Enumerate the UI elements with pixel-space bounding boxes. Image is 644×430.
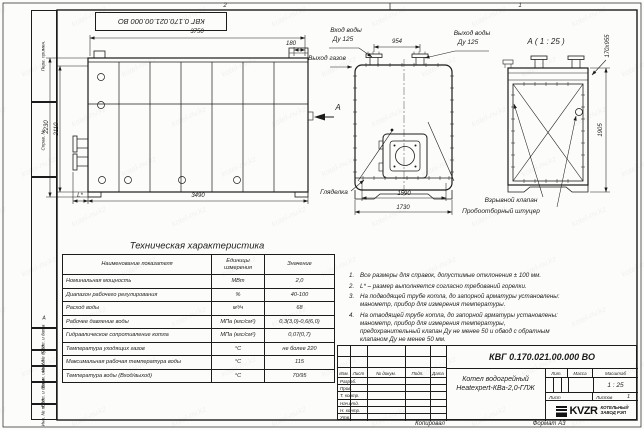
note-number: 3. — [349, 293, 360, 309]
spec-row: Гидравлическое сопротивление котлаМПа (к… — [63, 329, 335, 343]
frame-left-label: Инв. № подл. — [42, 398, 47, 427]
frame-left-box: Инв. № подл. — [31, 404, 57, 420]
signature-role-label: Утв. — [340, 415, 367, 422]
water-outlet-label: Выход воды — [454, 31, 491, 38]
notes-list: 1.Все размеры для справок, допустимые от… — [349, 272, 561, 347]
note-text: L* – размер выполняется согласно требова… — [360, 283, 527, 291]
safety-fitting — [94, 51, 105, 58]
scale-header: Масштаб — [593, 369, 638, 378]
spec-cell: 70/95 — [265, 369, 335, 383]
spec-row: Температура воды (Вход/выход)°С70/95 — [63, 369, 335, 383]
spec-cell: Расход воды — [63, 302, 212, 316]
spec-row: Рабочее давление водыМПа (кгс/см²)0,3(3,… — [63, 315, 335, 329]
dim-body-length: 3490 — [191, 193, 204, 199]
note-number: 1. — [349, 272, 360, 280]
kvzr-logo-icon — [556, 406, 567, 417]
note-number: 2. — [349, 283, 360, 291]
burner-plate — [379, 134, 427, 178]
revision-header-cell: № докум. — [367, 368, 405, 378]
product-model: Heatexpert-КВа-2,0-ГЛЖ — [446, 385, 545, 392]
dim-overall-length: 3750 — [190, 29, 203, 35]
view-a-arrow-label: А — [335, 104, 340, 112]
dim-nozzle-spacing: 954 — [392, 39, 402, 45]
signature-role-label: Разраб. — [340, 379, 367, 386]
dim-burner-length: L* — [77, 193, 83, 199]
spec-cell: Температура воды (Вход/выход) — [63, 369, 212, 383]
doc-number: КВГ 0.170.021.00.000 ВО — [489, 353, 595, 362]
dim-gas-outlet-offset: 180 — [286, 41, 296, 47]
manufacturer-logo: KVZR КОТЕЛЬНЫЙ ЗАВОД РЭП — [546, 401, 638, 421]
water-inlet-label: Вход воды — [330, 28, 362, 35]
spec-cell: Температура уходящих газов — [63, 342, 212, 356]
water-inlet-dn-label: Ду 125 — [333, 37, 354, 44]
detail-a-view — [503, 56, 588, 192]
spec-cell: Максимальная рабочая температура воды — [63, 356, 212, 370]
spec-cell: Диапазон рабочего регулирования — [63, 288, 212, 302]
dim-front-outer-width: 1730 — [396, 205, 409, 211]
peephole-label: Гляделка — [320, 190, 348, 197]
spec-table-title: Техническая характеристика — [130, 241, 265, 251]
dim-body-height: 2110 — [54, 123, 60, 136]
spec-cell: Рабочее давление воды — [63, 315, 212, 329]
copied-label: Копировал — [415, 421, 445, 427]
frame-left-label: Перв. примен. — [42, 41, 47, 72]
note-item: 4.На отводящей трубе котла, до запорной … — [349, 312, 561, 344]
spec-cell: Гидравлическое сопротивление котла — [63, 329, 212, 343]
note-item: 1.Все размеры для справок, допустимые от… — [349, 272, 561, 280]
frame-zone-number: 2 — [223, 3, 226, 9]
spec-cell: °С — [212, 369, 265, 383]
spec-cell: МВт — [212, 275, 265, 289]
spec-row: Температура уходящих газов°Сне более 220 — [63, 342, 335, 356]
view-a-arrow — [314, 114, 325, 121]
spec-cell: °С — [212, 342, 265, 356]
spec-header-row: Наименование показателяЕдиницы измерения… — [63, 255, 335, 275]
kvzr-logo-caption: КОТЕЛЬНЫЙ ЗАВОД РЭП — [600, 406, 628, 416]
frame-left-box: Перв. примен. — [31, 10, 57, 102]
spec-cell: МПа (кгс/см²) — [212, 329, 265, 343]
top-corner-stamp-text: КВГ 0.170.021.00.000 ВО — [118, 17, 205, 26]
sampling-fitting-port — [576, 109, 583, 116]
spec-table-body: Номинальная мощностьМВт2,0Диапазон рабоч… — [63, 275, 335, 383]
revision-header-cell: Дата — [430, 368, 446, 378]
spec-cell: не более 220 — [265, 342, 335, 356]
format-label: Формат А3 — [533, 421, 566, 427]
spec-cell: 68 — [265, 302, 335, 316]
note-text: На подводящей трубе котла, до запорной а… — [360, 293, 561, 309]
side-view-dimensions — [46, 35, 334, 204]
spec-cell: % — [212, 288, 265, 302]
signature-role-label: Н. контр. — [340, 408, 367, 415]
spec-row: Максимальная рабочая температура воды°С1… — [63, 356, 335, 370]
sampling-fitting-label: Пробоотборный штуцер — [462, 209, 540, 216]
note-text: На отводящей трубе котла, до запорной ар… — [360, 312, 561, 344]
signature-role-label: Т. контр. — [340, 393, 367, 400]
revision-header-cell: Изм. — [338, 368, 350, 378]
sheets-value: 1 — [627, 394, 630, 400]
title-block: Изм.Лист№ докум.Подп.Дата Разраб.Пров.Т.… — [337, 345, 637, 420]
side-view — [73, 48, 313, 197]
spec-row: Номинальная мощностьМВт2,0 — [63, 275, 335, 289]
top-corner-stamp: КВГ 0.170.021.00.000 ВО — [95, 12, 227, 31]
frame-left-box: Справ. № — [31, 102, 57, 177]
kvzr-logo-text: KVZR — [570, 405, 598, 417]
frame-left-strip: Перв. примен.Справ. №Подп. и датаИнв. № … — [31, 0, 57, 430]
spec-cell: 0,07(0,7) — [265, 329, 335, 343]
sheets-label: Листов — [596, 395, 612, 400]
detail-a-title: А ( 1 : 25 ) — [527, 38, 564, 46]
water-outlet-dn-label: Ду 125 — [458, 40, 479, 47]
spec-table: Наименование показателяЕдиницы измерения… — [62, 254, 335, 383]
spec-cell: 0,3(3,0)-0,6(6,0) — [265, 315, 335, 329]
revision-header-cell: Подп. — [405, 368, 430, 378]
spec-cell: м³/ч — [212, 302, 265, 316]
signature-role-label: Пров. — [340, 386, 367, 393]
note-number: 4. — [349, 312, 360, 344]
note-text: Все размеры для справок, допустимые откл… — [360, 272, 541, 280]
spec-header-cell: Значение — [265, 255, 335, 275]
spec-row: Диапазон рабочего регулирования%40-100 — [63, 288, 335, 302]
dim-detail-height: 1905 — [598, 123, 604, 136]
gas-outlet-label: Выход газов — [308, 56, 346, 63]
spec-header-cell: Наименование показателя — [63, 255, 212, 275]
frame-left-box — [31, 177, 57, 328]
note-item: 3.На подводящей трубе котла, до запорной… — [349, 293, 561, 309]
dim-front-inner-width: 1590 — [397, 191, 410, 197]
signature-role-label: Нач.отд. — [340, 401, 367, 408]
water-inlet-nozzle — [366, 52, 382, 66]
mass-header: Масса — [568, 369, 593, 378]
spec-row: Расход водым³/ч68 — [63, 302, 335, 316]
front-view — [353, 52, 454, 200]
revision-header-cell: Лист — [350, 368, 367, 378]
water-outlet-nozzle — [412, 52, 428, 66]
spec-cell: МПа (кгс/см²) — [212, 315, 265, 329]
spec-cell: Номинальная мощность — [63, 275, 212, 289]
spec-header-cell: Единицы измерения — [212, 255, 265, 275]
explosion-valve-label: Взрывной клапан — [485, 198, 538, 205]
dim-hatch-size: 170х955 — [605, 34, 611, 57]
dim-overall-height: 2230 — [44, 120, 50, 133]
product-name: Котел водогрейный — [446, 376, 545, 383]
frame-zone-number: 1 — [518, 3, 521, 9]
spec-cell: 2,0 — [265, 275, 335, 289]
lit-header: Лит. — [546, 369, 568, 378]
note-item: 2.L* – размер выполняется согласно требо… — [349, 283, 561, 291]
drawing-sheet: КВГ 0.170.021.00.000 ВО 2 1 А Перв. прим… — [0, 0, 644, 430]
spec-cell: 115 — [265, 356, 335, 370]
spec-cell: °С — [212, 356, 265, 370]
spec-cell: 40-100 — [265, 288, 335, 302]
scale-value: 1 : 25 — [593, 378, 638, 393]
